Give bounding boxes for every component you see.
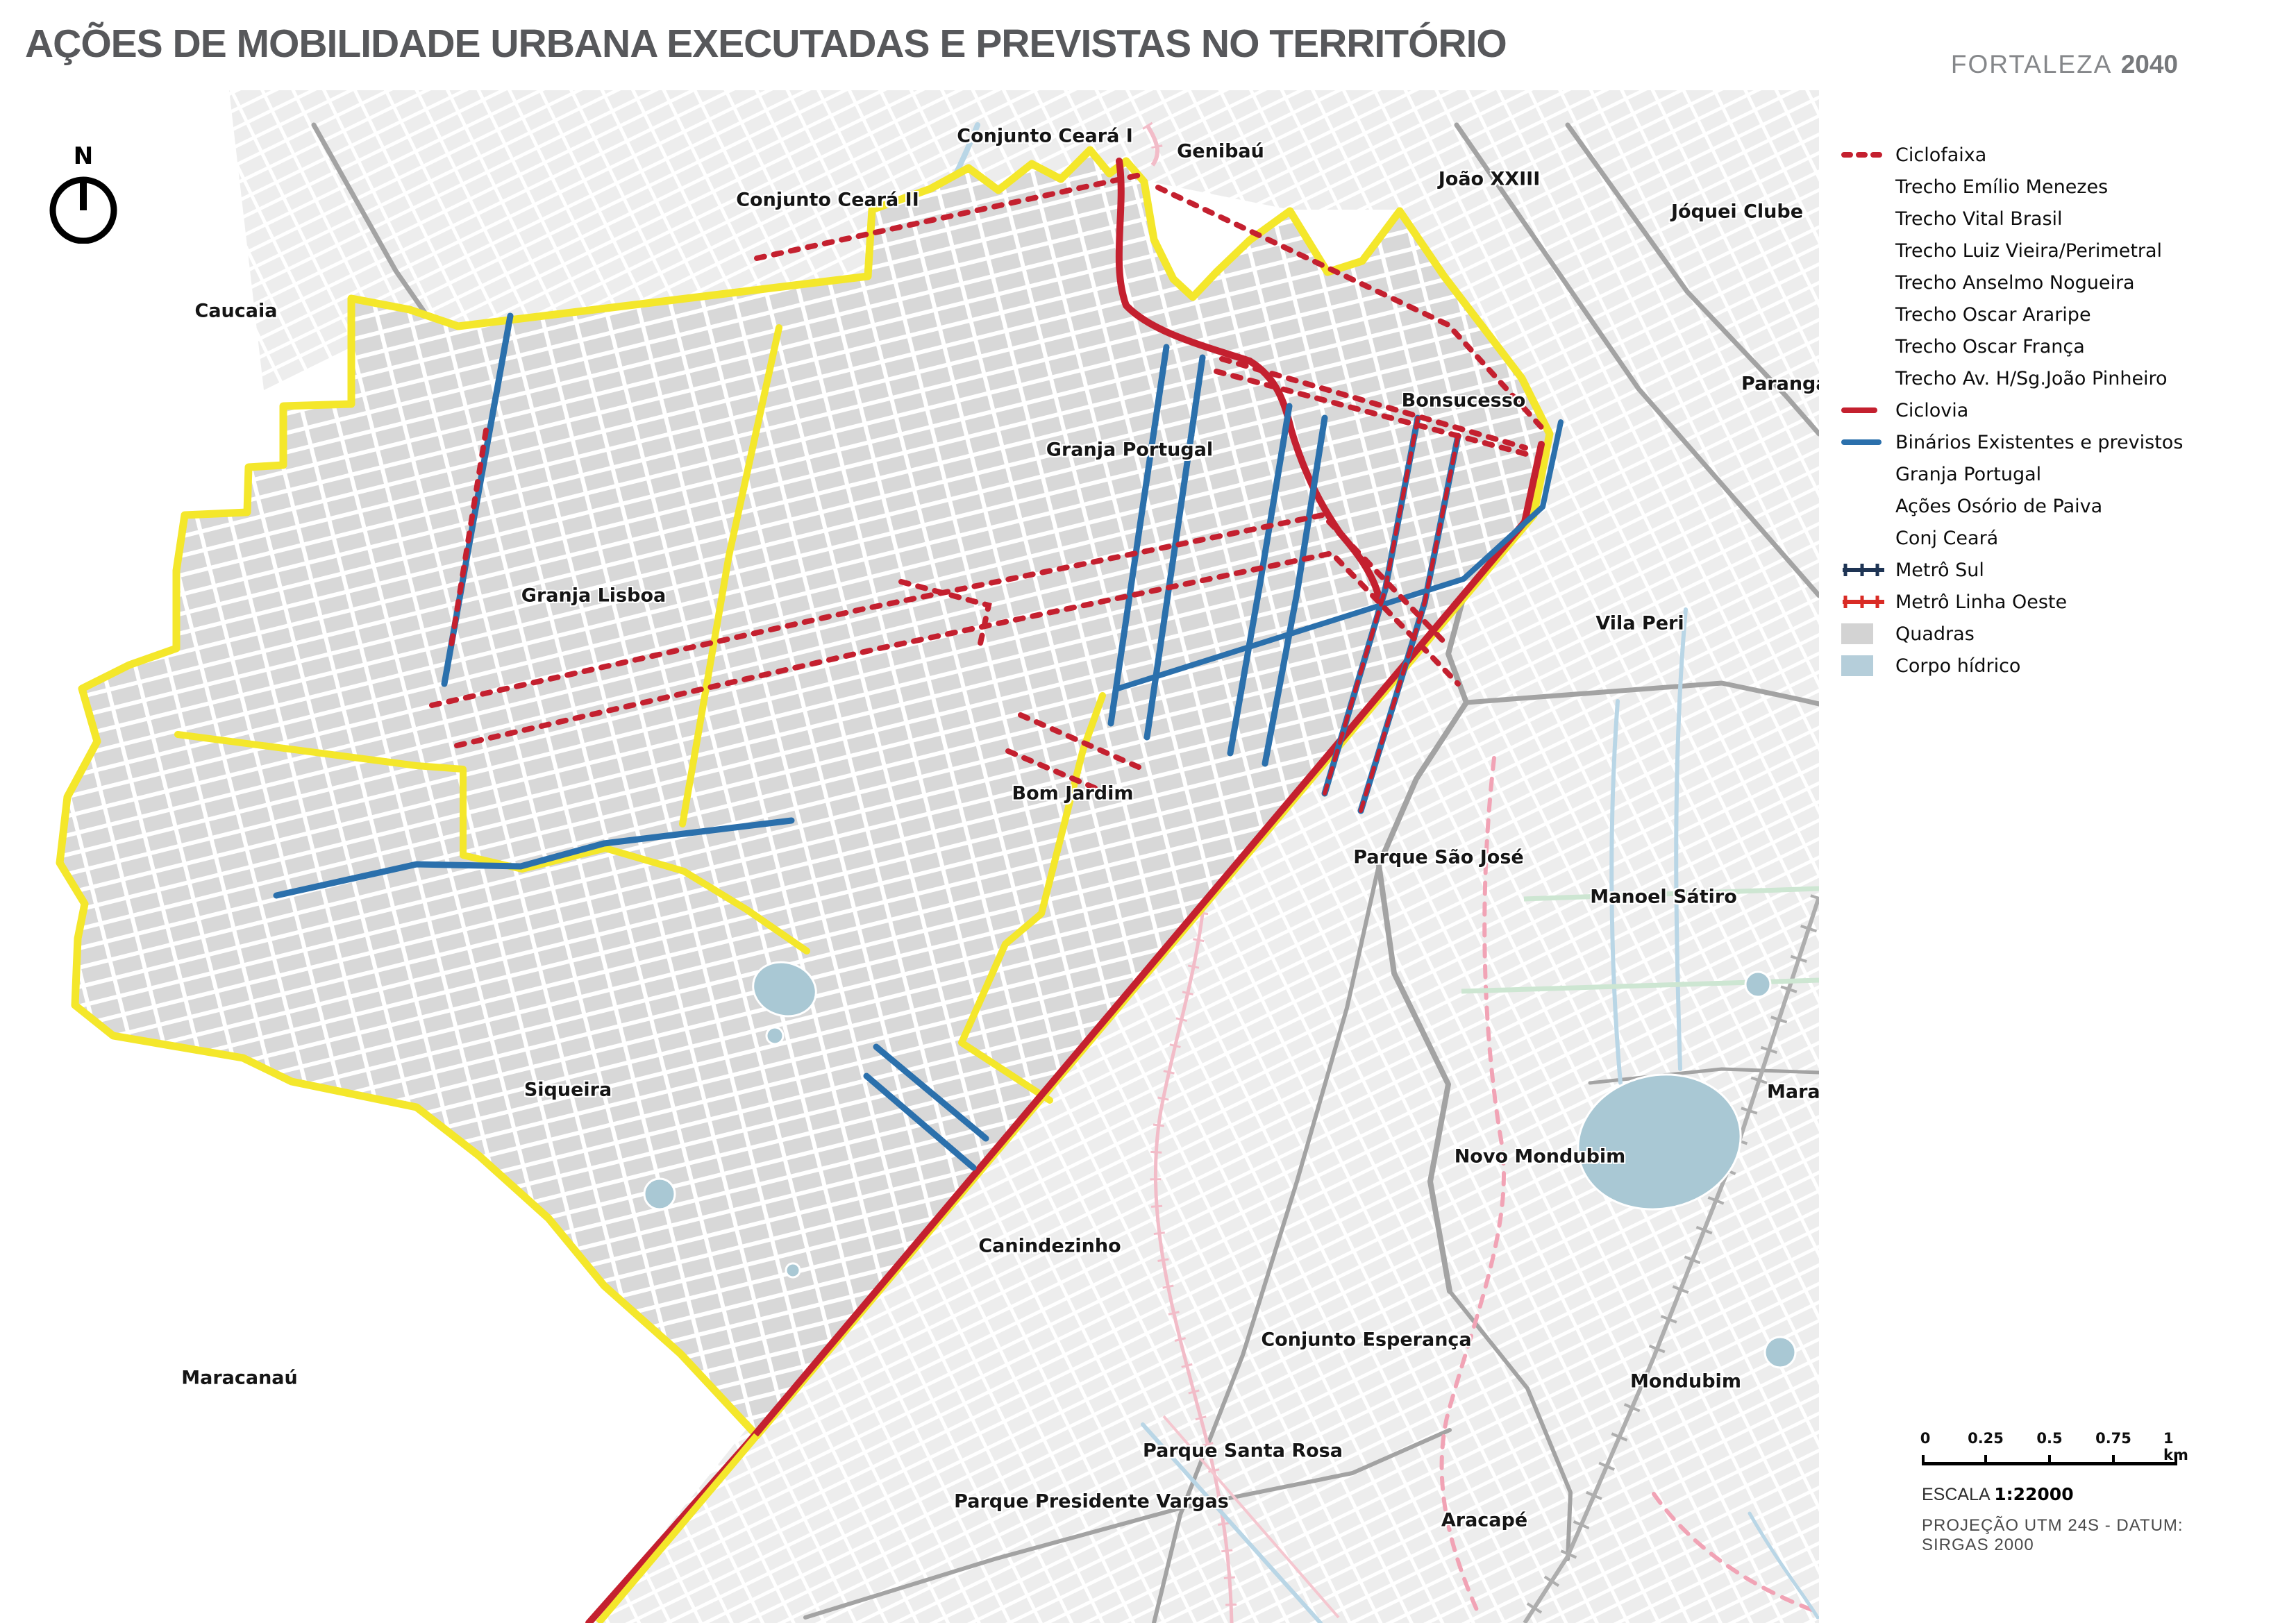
legend-label: Trecho Oscar Araripe	[1895, 304, 2091, 326]
legend-label: Ciclofaixa	[1895, 144, 1986, 166]
map-label: Maracanaú	[181, 1368, 298, 1389]
legend-item-metro-sul: Metrô Sul	[1841, 554, 2286, 586]
scale-tick-label: 0.25	[1968, 1430, 2004, 1447]
legend-item-trecho: Trecho Oscar França	[1841, 330, 2286, 362]
corpo-hidrico-swatch-icon	[1841, 655, 1895, 676]
legend-label: Trecho Vital Brasil	[1895, 208, 2063, 230]
map-label: Jóquei Clube	[1671, 201, 1803, 223]
legend-label: Metrô Sul	[1895, 560, 1984, 581]
scale-text: ESCALA 1:22000	[1922, 1484, 2213, 1505]
map-label: Parque São José	[1353, 847, 1523, 868]
brand-name: FORTALEZA	[1951, 50, 2113, 78]
legend-item-quadras: Quadras	[1841, 618, 2286, 650]
scale-tick-label: 0.5	[2036, 1430, 2062, 1447]
legend-label: Binários Existentes e previstos	[1895, 432, 2183, 453]
map-label: Parangaba	[1741, 373, 1819, 395]
map-label: Siqueira	[524, 1079, 612, 1101]
map-label: Conjunto Ceará I	[957, 126, 1132, 147]
legend-label: Granja Portugal	[1895, 464, 2041, 485]
scale-bar-line	[1922, 1455, 2213, 1466]
legend-label: Trecho Av. H/Sg.João Pinheiro	[1895, 368, 2168, 389]
legend-label: Quadras	[1895, 623, 1975, 645]
map-label: Parque Santa Rosa	[1143, 1440, 1343, 1462]
map-label: Novo Mondubim	[1455, 1146, 1626, 1168]
map-label: Mondubim	[1630, 1371, 1741, 1393]
legend-item-trecho: Trecho Av. H/Sg.João Pinheiro	[1841, 362, 2286, 394]
legend-item-corpo-hidrico: Corpo hídrico	[1841, 650, 2286, 682]
legend-label: Metrô Linha Oeste	[1895, 591, 2067, 613]
legend-item-trecho: Trecho Anselmo Nogueira	[1841, 267, 2286, 298]
legend-label: Corpo hídrico	[1895, 655, 2020, 677]
legend-label: Conj Ceará	[1895, 528, 1998, 549]
legend-item-subarea: Conj Ceará	[1841, 522, 2286, 554]
map-canvas: Conjunto Ceará I Genibaú João XXIII Jóqu…	[0, 0, 1819, 1623]
map-label: Aracapé	[1441, 1510, 1527, 1531]
legend-item-subarea: Ações Osório de Paiva	[1841, 490, 2286, 522]
legend-item-binarios: Binários Existentes e previstos	[1841, 426, 2286, 458]
north-arrow: N	[42, 142, 125, 244]
map-label: Granja Lisboa	[521, 585, 666, 607]
north-arrow-icon	[47, 171, 119, 244]
legend-label: Trecho Emílio Menezes	[1895, 176, 2108, 198]
map-label: Caucaia	[195, 301, 278, 322]
brand-year: 2040	[2121, 50, 2178, 78]
projection-text: PROJEÇÃO UTM 24S - DATUM: SIRGAS 2000	[1922, 1516, 2213, 1555]
legend-label: Trecho Oscar França	[1895, 336, 2085, 358]
binarios-swatch-icon	[1841, 439, 1895, 445]
map-label: Maraponga	[1767, 1082, 1819, 1103]
brand-logo: FORTALEZA 2040	[1951, 50, 2178, 79]
legend-item-ciclofaixa: Ciclofaixa	[1841, 139, 2286, 171]
map-label: João XXIII	[1439, 169, 1541, 190]
legend-item-trecho: Trecho Emílio Menezes	[1841, 171, 2286, 203]
scale-bar: 0 0.25 0.5 0.75 1 km ESCALA 1:22000 PROJ…	[1922, 1430, 2213, 1555]
legend-label: Trecho Anselmo Nogueira	[1895, 272, 2135, 294]
north-label: N	[42, 142, 125, 170]
legend-label: Ações Osório de Paiva	[1895, 496, 2102, 517]
map-label: Genibaú	[1177, 141, 1264, 162]
legend-item-subarea: Granja Portugal	[1841, 458, 2286, 490]
map-label: Parque Presidente Vargas	[954, 1491, 1229, 1513]
scale-tick-label: 0.75	[2095, 1430, 2131, 1447]
legend-label: Trecho Luiz Vieira/Perimetral	[1895, 240, 2162, 262]
ciclofaixa-swatch-icon	[1841, 150, 1895, 160]
legend-label: Ciclovia	[1895, 400, 1968, 421]
legend-item-metro-oeste: Metrô Linha Oeste	[1841, 586, 2286, 618]
legend: Ciclofaixa Trecho Emílio Menezes Trecho …	[1841, 139, 2286, 682]
legend-item-trecho: Trecho Oscar Araripe	[1841, 298, 2286, 330]
metro-oeste-swatch-icon	[1841, 594, 1895, 609]
scale-labels: 0 0.25 0.5 0.75 1 km	[1922, 1430, 2213, 1451]
map-label: Conjunto Esperança	[1261, 1329, 1471, 1351]
map-label: Canindezinho	[978, 1236, 1121, 1257]
map-label: Conjunto Ceará II	[736, 190, 919, 211]
scale-tick-label: 0	[1920, 1430, 1931, 1447]
legend-item-trecho: Trecho Luiz Vieira/Perimetral	[1841, 235, 2286, 267]
map-label: Granja Portugal	[1046, 439, 1213, 461]
escala-label: ESCALA	[1922, 1485, 1989, 1504]
map-label: Bonsucesso	[1402, 390, 1526, 412]
legend-item-ciclovia: Ciclovia	[1841, 394, 2286, 426]
map-label: Bom Jardim	[1012, 783, 1134, 805]
ciclovia-swatch-icon	[1841, 407, 1895, 413]
quadras-swatch-icon	[1841, 623, 1895, 644]
page-title: AÇÕES DE MOBILIDADE URBANA EXECUTADAS E …	[25, 21, 1622, 67]
metro-sul-swatch-icon	[1841, 562, 1895, 578]
map-label: Manoel Sátiro	[1590, 886, 1737, 908]
map-label: Vila Peri	[1595, 613, 1684, 634]
legend-item-trecho: Trecho Vital Brasil	[1841, 203, 2286, 235]
escala-value: 1:22000	[1994, 1484, 2073, 1504]
